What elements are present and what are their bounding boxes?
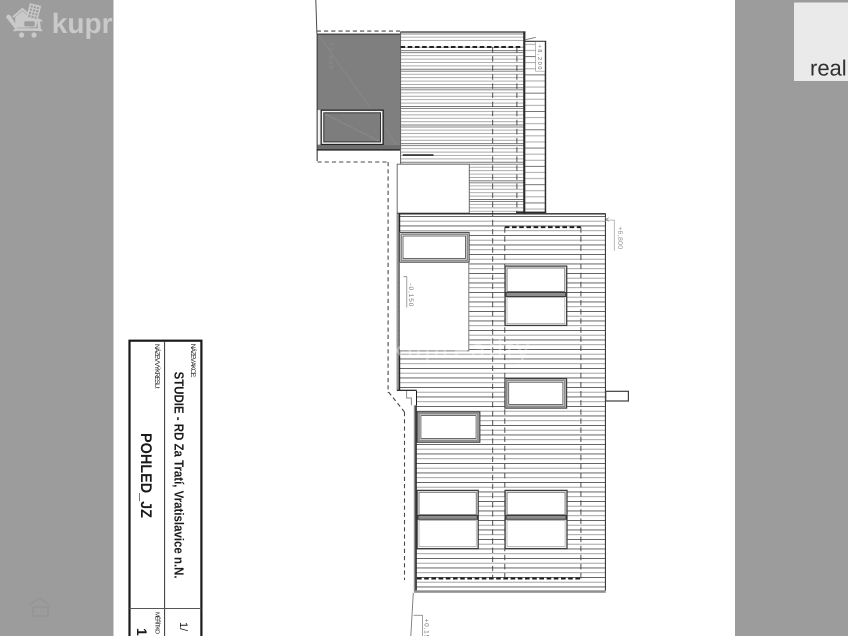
svg-text:MĚŘÍTKO: MĚŘÍTKO xyxy=(154,612,162,634)
svg-text:+0,150: +0,150 xyxy=(423,619,430,636)
svg-text:1/: 1/ xyxy=(177,622,189,632)
svg-text:1: 1 xyxy=(134,628,150,636)
svg-text:-0,150: -0,150 xyxy=(407,283,414,306)
svg-text:+6,800: +6,800 xyxy=(616,226,623,249)
svg-text:real: real xyxy=(810,56,847,81)
svg-text:STUDIE - RD Za Tratí, Vratisla: STUDIE - RD Za Tratí, Vratislavice n.N. xyxy=(172,372,187,579)
svg-text:kupre: kupre xyxy=(52,8,128,39)
svg-text:NÁZEV AKCE:: NÁZEV AKCE: xyxy=(189,344,197,378)
svg-text:kupreality: kupreality xyxy=(391,334,532,364)
svg-text:POHLED_JZ: POHLED_JZ xyxy=(137,433,154,518)
svg-text:NÁZEV VÝKRESU:: NÁZEV VÝKRESU: xyxy=(153,344,161,389)
